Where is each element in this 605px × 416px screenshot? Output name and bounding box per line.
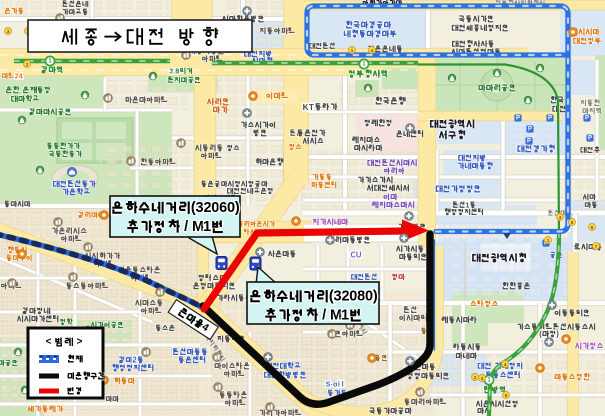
svg-text:K: K <box>303 102 309 112</box>
svg-text:/: / <box>184 219 188 235</box>
svg-text:/: / <box>322 308 326 324</box>
svg-text:2: 2 <box>132 356 137 365</box>
svg-text:3: 3 <box>7 29 10 34</box>
svg-text:0: 0 <box>227 200 235 216</box>
svg-text:3: 3 <box>196 200 204 216</box>
svg-text:1: 1 <box>203 219 211 235</box>
svg-text:3: 3 <box>334 289 342 305</box>
svg-text:2: 2 <box>474 375 477 380</box>
svg-text:): ) <box>373 289 378 305</box>
svg-text:5: 5 <box>505 393 508 398</box>
svg-text:1: 1 <box>465 201 469 210</box>
svg-text:1: 1 <box>341 308 349 324</box>
svg-text:<: < <box>46 337 52 348</box>
svg-text:3: 3 <box>481 376 484 381</box>
svg-text:2: 2 <box>26 62 29 67</box>
svg-text:5: 5 <box>591 225 594 230</box>
svg-text:>: > <box>77 337 83 348</box>
svg-text:i: i <box>338 380 340 389</box>
svg-text:4: 4 <box>559 215 562 220</box>
svg-text:4: 4 <box>371 48 374 53</box>
svg-text:T: T <box>309 102 314 112</box>
svg-text:4: 4 <box>504 362 507 367</box>
svg-text:(: ( <box>539 330 542 339</box>
svg-text:l: l <box>342 380 344 389</box>
svg-text:8: 8 <box>175 67 179 76</box>
svg-text:): ) <box>235 200 240 216</box>
svg-text:9: 9 <box>571 220 574 225</box>
svg-text:0: 0 <box>365 289 373 305</box>
svg-text:7: 7 <box>595 244 598 249</box>
svg-text:1: 1 <box>351 48 354 53</box>
svg-text:1: 1 <box>547 238 550 243</box>
svg-text:U: U <box>356 251 362 260</box>
svg-text:): ) <box>556 330 559 339</box>
